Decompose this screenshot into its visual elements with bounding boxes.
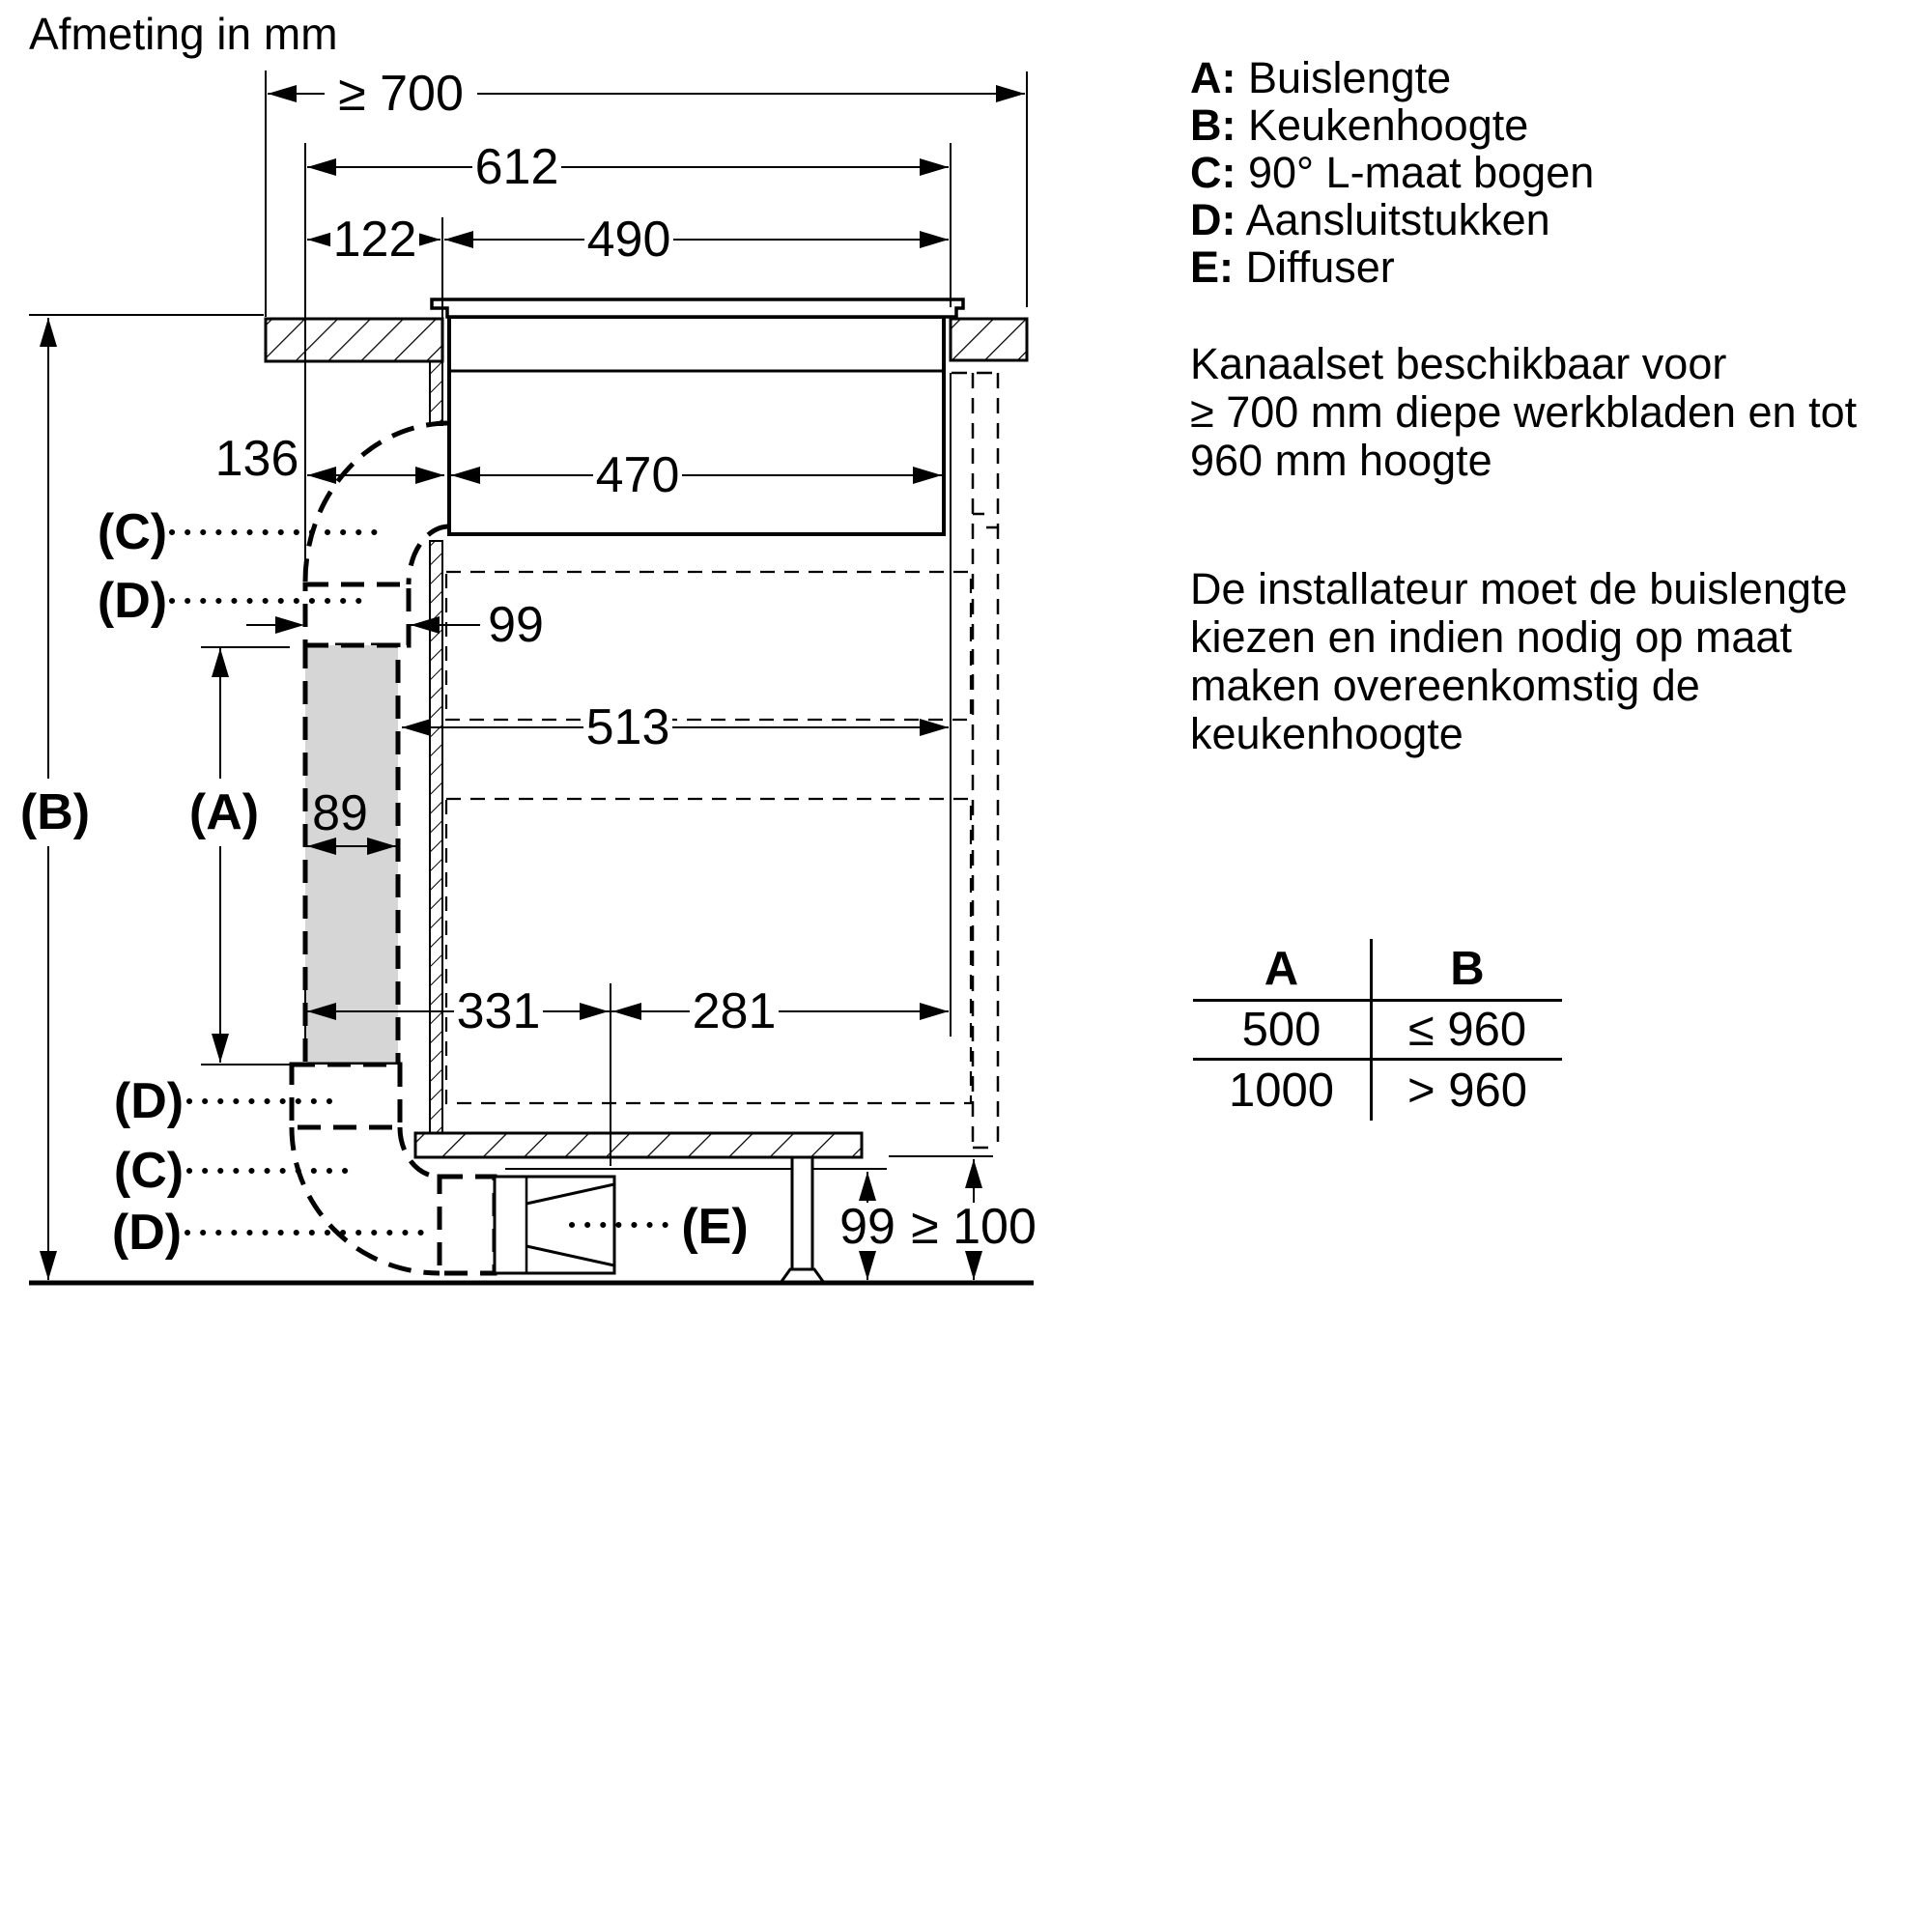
dim-duct-offset: 136 (215, 431, 299, 487)
legend-key-e: E: (1190, 242, 1234, 292)
legend-item-d: D: Aansluitstukken (1190, 196, 1594, 243)
dim-hob-width: 612 (475, 139, 559, 195)
legend-label-e: Diffuser (1246, 242, 1395, 292)
connector-middle (292, 1065, 400, 1127)
duct-alternative-right (952, 373, 998, 1150)
note-installer-line2: kiezen en indien nodig op maat (1190, 613, 1847, 662)
legend-key-a: A: (1190, 53, 1236, 102)
table-cell-b1: ≤ 960 (1370, 1002, 1562, 1058)
note-availability-line3: 960 mm hoogte (1190, 437, 1857, 485)
installation-diagram: ≥ 700 612 122 490 136 470 99 513 89 331 … (0, 0, 1932, 1932)
cabinet-bottom-panel (415, 1133, 862, 1157)
connector-lower (440, 1177, 495, 1273)
cabinet-leg (792, 1157, 812, 1269)
dim-cutout-width: 490 (587, 212, 671, 268)
leader-lines (172, 532, 673, 1233)
label-c-lower: (C) (114, 1143, 184, 1199)
dim-duct-width: 89 (312, 785, 368, 841)
connector-upper (305, 584, 409, 645)
note-availability-line2: ≥ 700 mm diepe werkbladen en tot (1190, 388, 1857, 437)
dim-plinth-height: ≥ 100 (911, 1199, 1037, 1255)
legend-label-a: Buislengte (1248, 53, 1451, 102)
dim-offset-left: 122 (333, 212, 417, 268)
table-cell-a1: 500 (1193, 1002, 1370, 1058)
table-row: 500 ≤ 960 (1193, 1002, 1562, 1061)
table-cell-a2: 1000 (1193, 1061, 1370, 1121)
note-availability: Kanaalset beschikbaar voor ≥ 700 mm diep… (1190, 340, 1857, 485)
label-e: (E) (681, 1199, 748, 1255)
note-availability-line1: Kanaalset beschikbaar voor (1190, 340, 1857, 388)
dimension-lines (48, 94, 1025, 1280)
table-row: 1000 > 960 (1193, 1061, 1562, 1121)
legend-label-d: Aansluitstukken (1246, 195, 1550, 244)
label-b: (B) (20, 784, 90, 840)
duct-vertical (305, 645, 398, 1065)
note-installer-line4: keukenhoogte (1190, 710, 1847, 758)
dim-base-left: 331 (457, 983, 541, 1039)
legend-item-b: B: Keukenhoogte (1190, 101, 1594, 149)
dim-connector-width: 99 (488, 597, 544, 653)
diffuser (495, 1177, 614, 1273)
legend: A: Buislengte B: Keukenhoogte C: 90° L-m… (1190, 54, 1594, 291)
legend-key-d: D: (1190, 195, 1236, 244)
worktop-right (951, 319, 1027, 360)
table-header-b: B (1370, 939, 1562, 999)
legend-item-c: C: 90° L-maat bogen (1190, 149, 1594, 196)
label-c-upper: (C) (98, 504, 167, 560)
hob-body (449, 317, 944, 534)
label-d-middle: (D) (114, 1073, 184, 1129)
note-installer-line3: maken overeenkomstig de (1190, 662, 1847, 710)
dim-interior-width: 513 (586, 699, 670, 755)
label-a: (A) (189, 784, 259, 840)
legend-item-a: A: Buislengte (1190, 54, 1594, 101)
legend-item-e: E: Diffuser (1190, 243, 1594, 291)
legend-key-b: B: (1190, 100, 1236, 150)
note-installer: De installateur moet de buislengte kieze… (1190, 565, 1847, 758)
diffuser-box (495, 1177, 614, 1273)
table-header-row: A B (1193, 939, 1562, 1002)
side-panel-upper (430, 361, 442, 425)
dim-worktop-depth: ≥ 700 (338, 66, 464, 122)
legend-label-b: Keukenhoogte (1248, 100, 1528, 150)
dim-body-width: 470 (596, 447, 680, 503)
dim-plinth-recess: 99 (839, 1199, 895, 1255)
legend-key-c: C: (1190, 148, 1236, 197)
note-installer-line1: De installateur moet de buislengte (1190, 565, 1847, 613)
dim-base-right: 281 (693, 983, 777, 1039)
label-d-upper: (D) (98, 573, 167, 629)
hob-glass (432, 299, 963, 317)
pipe-length-table: A B 500 ≤ 960 1000 > 960 (1193, 939, 1562, 1121)
legend-label-c: 90° L-maat bogen (1248, 148, 1594, 197)
bend-upper-outer (305, 423, 449, 582)
interior-zone-lower (446, 799, 971, 1103)
table-header-a: A (1193, 939, 1370, 999)
worktop-left (266, 319, 442, 361)
label-d-lower: (D) (112, 1205, 182, 1261)
table-cell-b2: > 960 (1370, 1061, 1562, 1121)
